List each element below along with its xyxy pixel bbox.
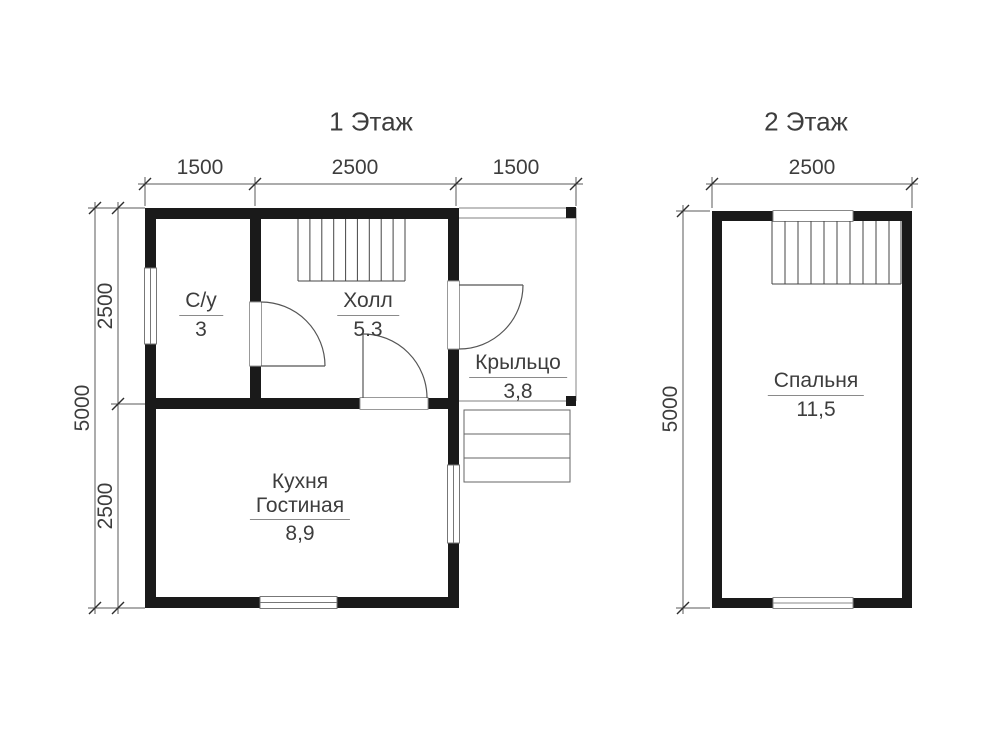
room-label-porch: Крыльцо 3,8 xyxy=(469,351,567,403)
entry-steps xyxy=(464,410,570,482)
kitchen-door-opening xyxy=(360,398,428,410)
floor2-title: 2 Этаж xyxy=(764,107,848,138)
porch-area: 3,8 xyxy=(503,378,532,404)
room-label-bedroom: Спальня 11,5 xyxy=(768,369,864,421)
step xyxy=(464,410,570,434)
bedroom-area: 11,5 xyxy=(796,396,835,422)
porch-posts xyxy=(566,207,576,406)
floor1-dim-top-3: 1500 xyxy=(493,156,540,180)
porch-post-bottom xyxy=(566,396,576,406)
kitchen-door-arc xyxy=(363,334,427,398)
room-label-bathroom: С/у 3 xyxy=(179,289,223,341)
floor2-dim-top: 2500 xyxy=(789,156,836,180)
step xyxy=(464,458,570,482)
floor1-top-wall xyxy=(145,208,459,219)
floor2-stairs xyxy=(772,221,901,284)
step xyxy=(464,434,570,458)
kitchen-name-line1: Кухня xyxy=(270,470,330,494)
floor2-stairwell-opening xyxy=(773,211,853,222)
room-label-hall: Холл 5.3 xyxy=(337,289,399,341)
floorplan-canvas: 1 Этаж 2 Этаж 1500 2500 1500 2500 2500 5… xyxy=(0,0,1000,750)
floor2-dim-left: 5000 xyxy=(659,386,683,433)
bathroom-area: 3 xyxy=(195,316,207,342)
bedroom-name: Спальня xyxy=(768,369,864,396)
porch-door-opening xyxy=(448,281,460,349)
floor1-dim-left-total: 5000 xyxy=(71,385,95,432)
hall-name: Холл xyxy=(337,289,399,316)
floor2-right-wall xyxy=(902,211,912,608)
floor1-dim-left-upper: 2500 xyxy=(94,283,118,330)
floor1-title: 1 Этаж xyxy=(329,107,413,138)
floor2-left-wall xyxy=(712,211,722,608)
bathroom-door-arc xyxy=(261,302,325,366)
bathroom-name: С/у xyxy=(179,289,223,316)
porch-name: Крыльцо xyxy=(469,351,567,378)
room-label-kitchen: Кухня Гостиная 8,9 xyxy=(250,470,350,546)
kitchen-area: 8,9 xyxy=(285,520,314,546)
floor1-stairs xyxy=(298,219,405,281)
kitchen-name-line2: Гостиная xyxy=(250,494,350,521)
porch-post-top xyxy=(566,207,576,218)
porch-door-arc xyxy=(459,285,523,349)
floor1-dim-top-1: 1500 xyxy=(177,156,224,180)
floor1-dim-left-lower: 2500 xyxy=(94,483,118,530)
floor1-dim-top-2: 2500 xyxy=(332,156,379,180)
hall-area: 5.3 xyxy=(353,316,382,342)
bathroom-door-opening xyxy=(250,302,262,366)
